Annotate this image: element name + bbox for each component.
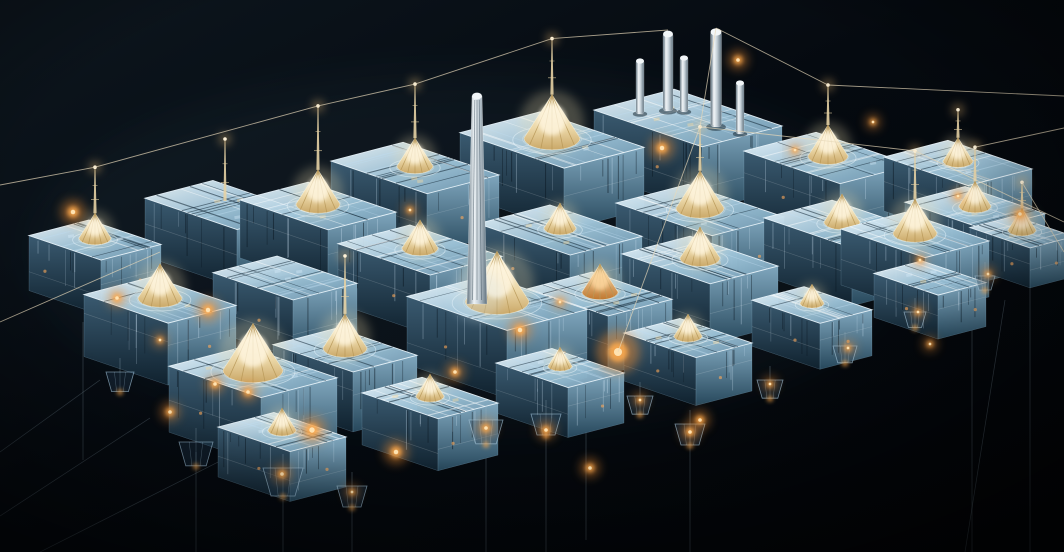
vignette <box>0 0 1064 552</box>
artwork-canvas <box>0 0 1064 552</box>
generated-artwork <box>0 0 1064 552</box>
